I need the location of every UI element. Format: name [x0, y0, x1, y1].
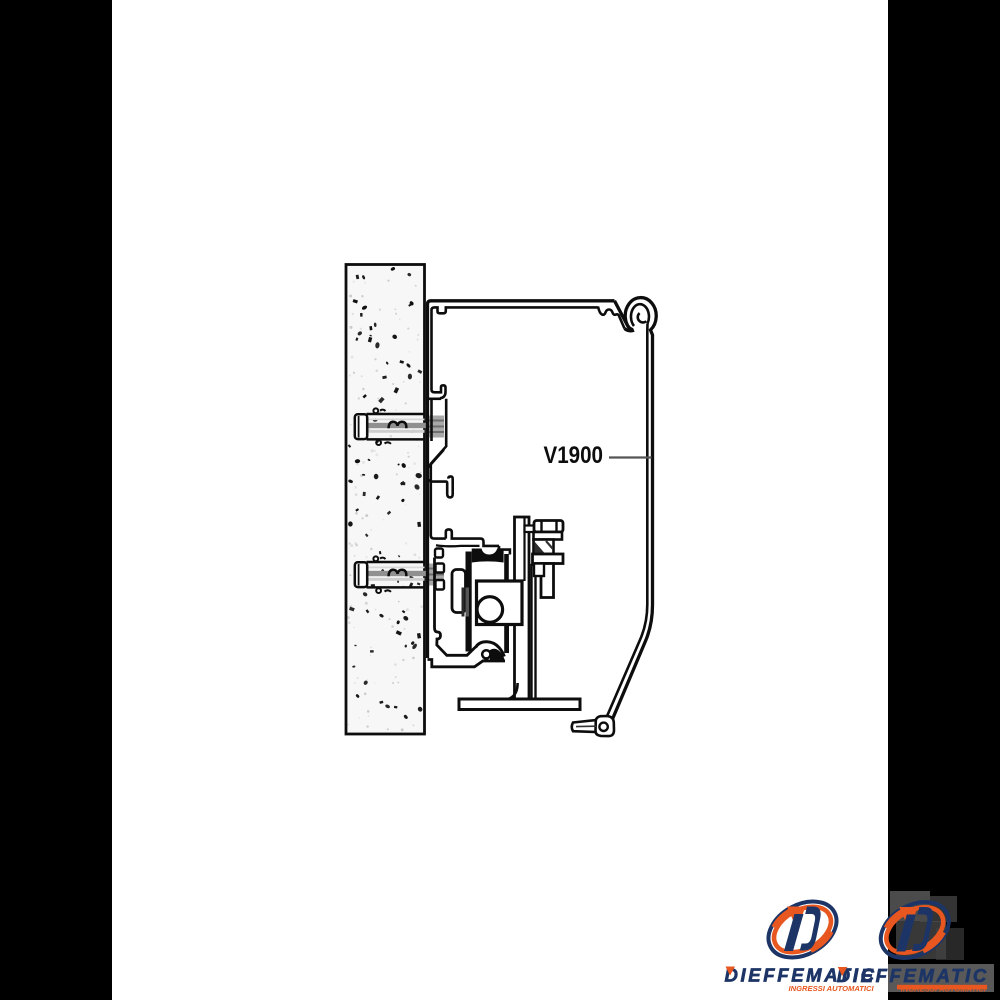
svg-text:V1900: V1900	[544, 442, 604, 469]
